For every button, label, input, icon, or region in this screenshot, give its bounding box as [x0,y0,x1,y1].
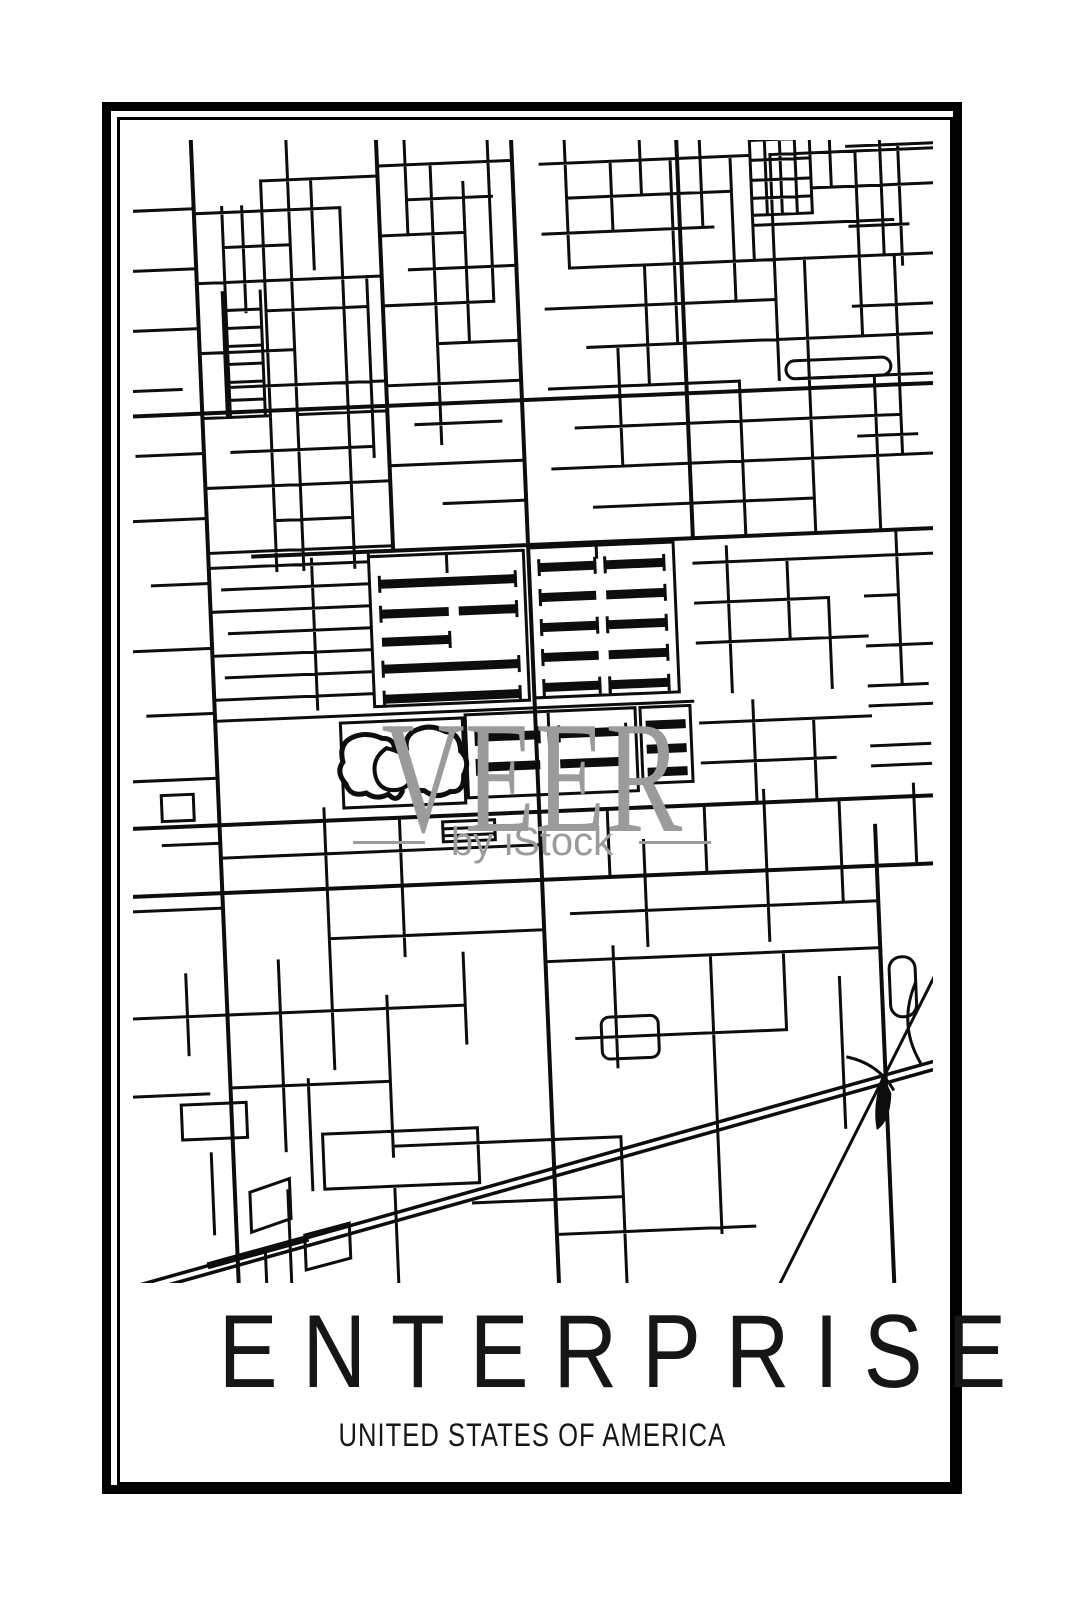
poster-subtitle: UNITED STATES OF AMERICA [120,1419,944,1451]
poster-title: ENTERPRISE [120,1300,944,1404]
watermark-left-dash [353,841,425,844]
watermark-right-dash [639,841,711,844]
poster-subtitle-label: UNITED STATES OF AMERICA [338,1419,726,1451]
watermark-byline-label: by iStock [451,820,613,864]
map-poster: VEER by iStock ENTERPRISE UNITED STATES … [0,0,1067,1600]
poster-title-label: ENTERPRISE [194,1300,1031,1404]
watermark-byline-row: by iStock [120,820,944,864]
